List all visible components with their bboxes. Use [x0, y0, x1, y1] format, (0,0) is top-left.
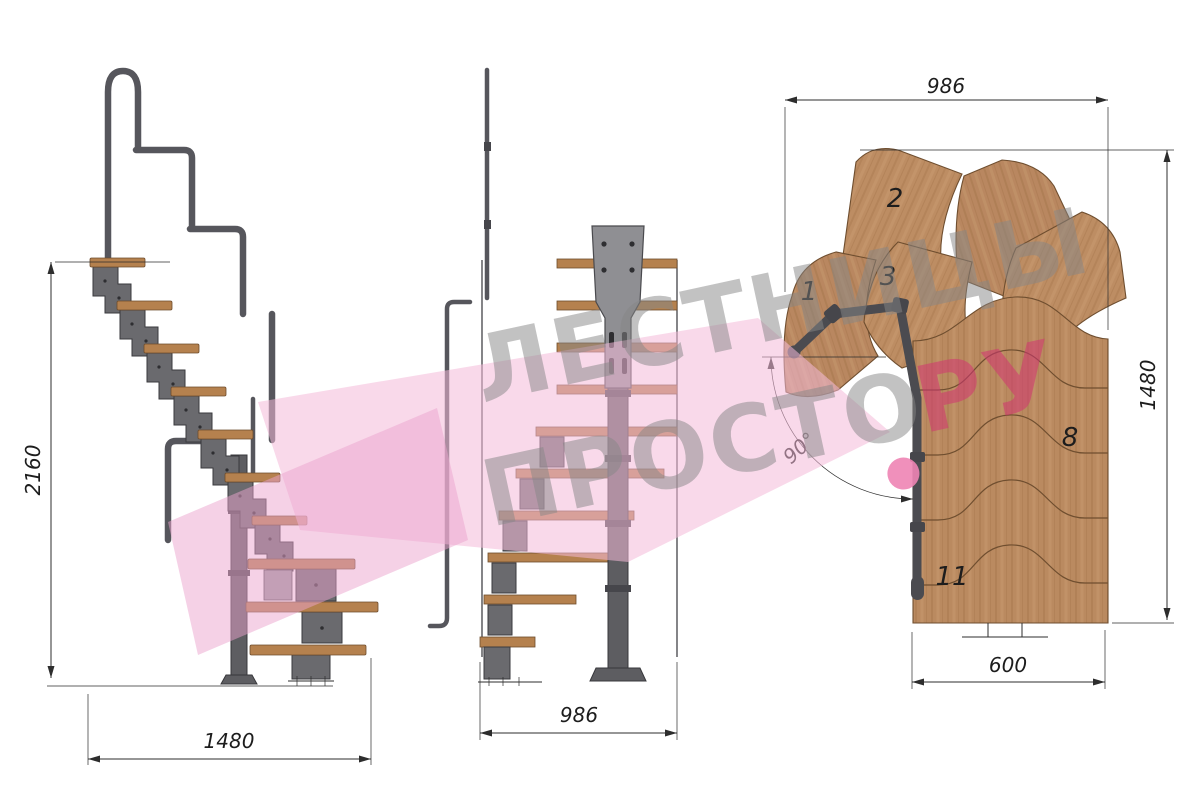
- tread-number-11: 11: [935, 562, 968, 592]
- front-handrail-post: [484, 70, 491, 298]
- dim-label-986-front: 986: [560, 703, 598, 727]
- dim-label-986-plan: 986: [927, 74, 965, 98]
- staircase-drawing: 2160 1480: [0, 0, 1200, 807]
- tread-number-8: 8: [1062, 423, 1079, 453]
- dim-label-600: 600: [989, 653, 1027, 677]
- dim-label-1480-side: 1480: [204, 729, 255, 753]
- dim-label-2160: 2160: [21, 445, 45, 496]
- step-module-wide: [250, 645, 366, 686]
- dim-label-1480-plan: 1480: [1136, 360, 1160, 411]
- plan-base-plate: [962, 623, 1048, 637]
- technical-drawing-page: 2160 1480: [0, 0, 1200, 807]
- plan-dimension-bottom: 600: [912, 630, 1105, 689]
- tread-number-2: 2: [887, 184, 904, 214]
